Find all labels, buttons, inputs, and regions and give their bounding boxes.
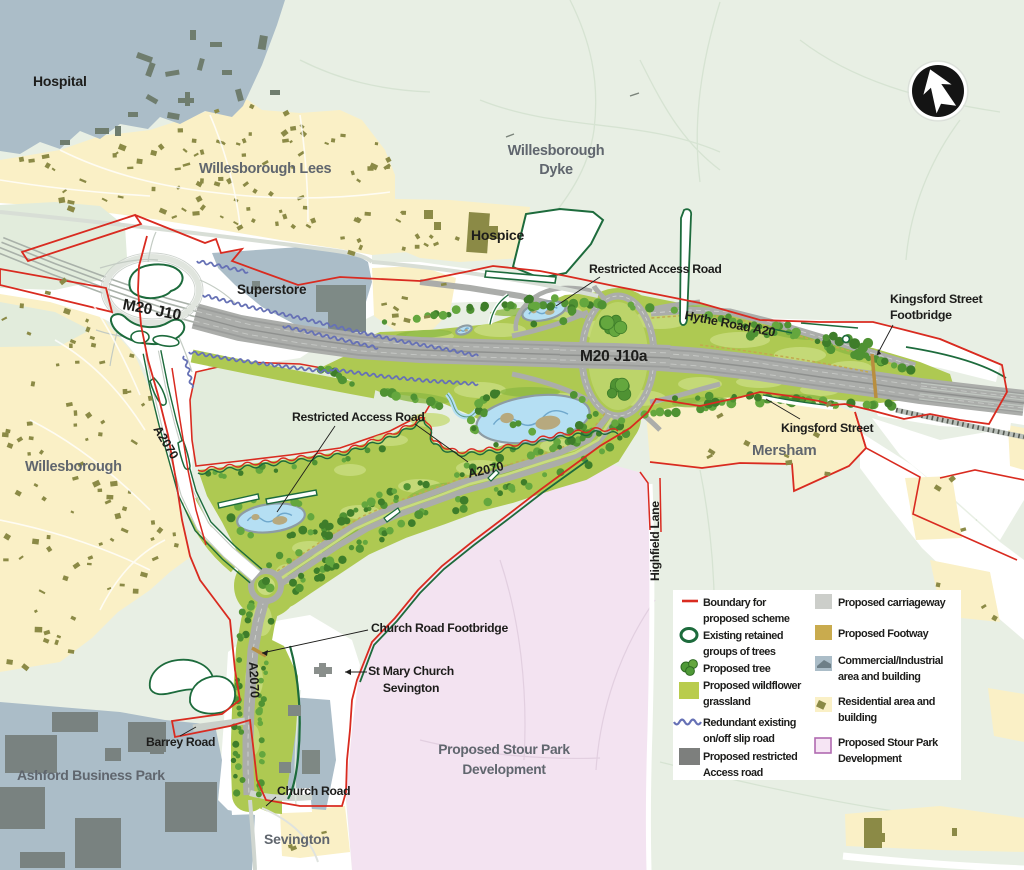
svg-text:Willesborough Lees: Willesborough Lees — [199, 161, 331, 177]
svg-text:Hospital: Hospital — [33, 73, 87, 89]
svg-text:Church Road Footbridge: Church Road Footbridge — [371, 621, 508, 635]
svg-text:Proposed wildflower: Proposed wildflower — [703, 680, 802, 692]
svg-text:Proposed Stour Park: Proposed Stour Park — [438, 742, 570, 757]
svg-text:Hospice: Hospice — [471, 227, 524, 243]
svg-text:on/off slip road: on/off slip road — [703, 733, 774, 745]
svg-text:Development: Development — [838, 753, 902, 765]
svg-text:Sevington: Sevington — [264, 831, 330, 847]
svg-text:Ashford Business Park: Ashford Business Park — [17, 767, 165, 783]
svg-text:Commercial/Industrial: Commercial/Industrial — [838, 655, 943, 667]
svg-text:Willesborough: Willesborough — [25, 459, 122, 475]
svg-text:Mersham: Mersham — [752, 442, 816, 459]
svg-text:Restricted Access Road: Restricted Access Road — [589, 262, 722, 276]
svg-text:Highfield Lane: Highfield Lane — [648, 501, 662, 581]
svg-text:M20 J10a: M20 J10a — [580, 348, 648, 365]
svg-text:Boundary for: Boundary for — [703, 597, 767, 609]
svg-text:A2070: A2070 — [246, 661, 262, 698]
svg-text:Development: Development — [462, 762, 546, 777]
svg-text:Proposed restricted: Proposed restricted — [703, 751, 797, 763]
svg-text:Sevington: Sevington — [383, 681, 439, 695]
svg-text:Church Road: Church Road — [277, 784, 350, 798]
svg-text:Access road: Access road — [703, 767, 763, 779]
svg-text:proposed scheme: proposed scheme — [703, 613, 790, 625]
svg-text:building: building — [838, 712, 877, 724]
svg-text:Proposed Footway: Proposed Footway — [838, 628, 929, 640]
svg-text:area and building: area and building — [838, 671, 921, 683]
svg-text:Dyke: Dyke — [539, 162, 573, 178]
svg-text:Residential area and: Residential area and — [838, 696, 935, 708]
svg-text:Footbridge: Footbridge — [890, 308, 952, 322]
svg-text:Proposed carriageway: Proposed carriageway — [838, 597, 946, 609]
svg-text:St Mary Church: St Mary Church — [368, 664, 454, 678]
svg-text:Kingsford Street: Kingsford Street — [890, 292, 982, 306]
svg-text:Redundant existing: Redundant existing — [703, 717, 796, 729]
svg-text:Proposed tree: Proposed tree — [703, 663, 771, 675]
svg-text:Restricted Access Road: Restricted Access Road — [292, 410, 425, 424]
svg-text:Proposed Stour Park: Proposed Stour Park — [838, 737, 939, 749]
svg-text:groups of trees: groups of trees — [703, 646, 776, 658]
svg-text:grassland: grassland — [703, 696, 750, 708]
svg-text:Barrey Road: Barrey Road — [146, 735, 215, 749]
svg-text:Willesborough: Willesborough — [508, 143, 605, 159]
svg-text:Kingsford Street: Kingsford Street — [781, 421, 873, 435]
svg-text:Existing retained: Existing retained — [703, 630, 783, 642]
svg-text:Superstore: Superstore — [237, 282, 307, 297]
